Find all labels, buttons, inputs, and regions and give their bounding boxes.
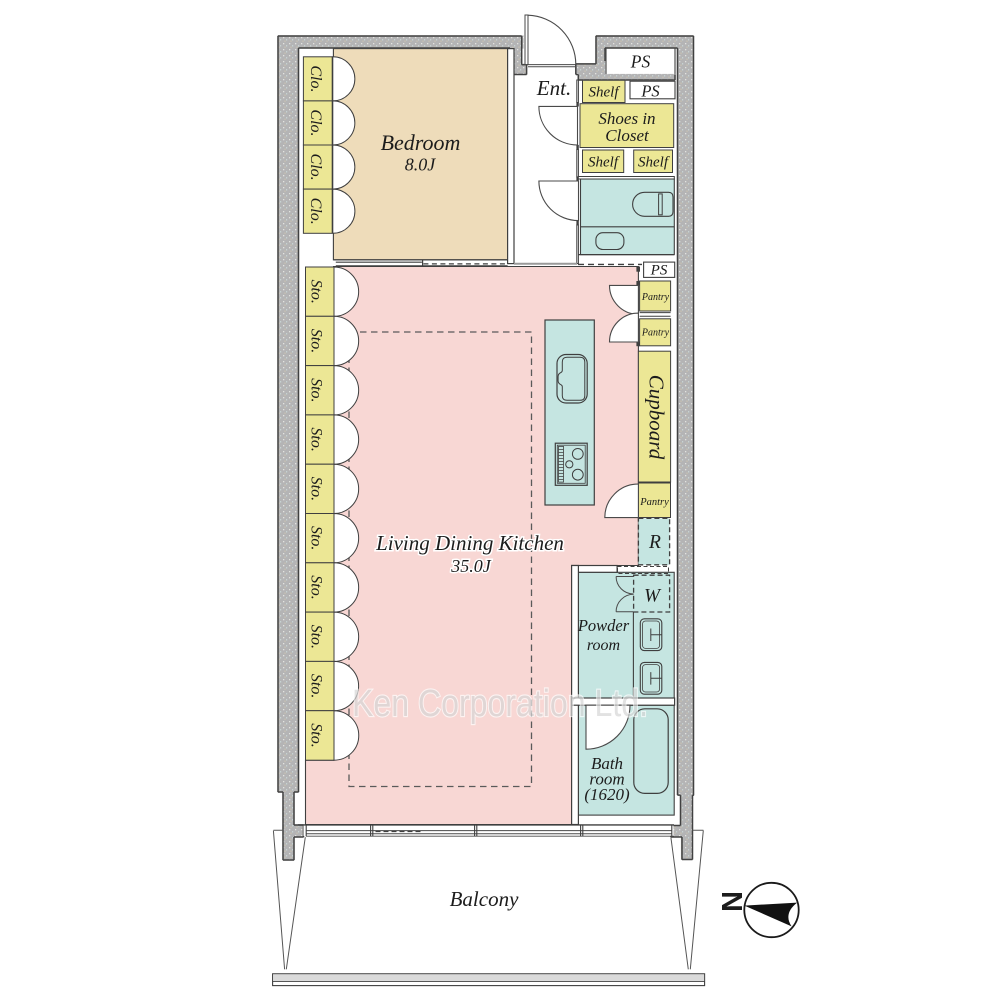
- svg-text:Sto.: Sto.: [308, 674, 325, 698]
- svg-text:Powder: Powder: [577, 616, 630, 635]
- svg-text:(1620): (1620): [584, 785, 630, 804]
- svg-text:R: R: [648, 532, 661, 553]
- svg-text:Shelf: Shelf: [589, 85, 621, 101]
- svg-text:Ent.: Ent.: [536, 76, 571, 100]
- svg-text:PS: PS: [640, 82, 659, 101]
- svg-text:Sto.: Sto.: [308, 526, 325, 550]
- svg-text:PS: PS: [630, 52, 651, 72]
- svg-text:PS: PS: [650, 263, 668, 279]
- svg-text:Ken Corporation Ltd.: Ken Corporation Ltd.: [352, 683, 648, 725]
- svg-text:Pantry: Pantry: [641, 292, 670, 303]
- svg-text:Shelf: Shelf: [588, 155, 620, 171]
- svg-text:Closet: Closet: [605, 126, 650, 145]
- svg-text:Sto.: Sto.: [308, 427, 325, 451]
- svg-text:Sto.: Sto.: [308, 625, 325, 649]
- svg-text:Clo.: Clo.: [307, 198, 324, 225]
- svg-text:Bedroom: Bedroom: [381, 130, 461, 155]
- svg-text:Pantry: Pantry: [639, 497, 669, 508]
- svg-text:N: N: [715, 891, 747, 912]
- svg-text:Sto.: Sto.: [308, 723, 325, 747]
- svg-text:Clo.: Clo.: [307, 154, 324, 181]
- svg-text:Clo.: Clo.: [307, 65, 324, 92]
- svg-text:Sto.: Sto.: [308, 279, 325, 303]
- svg-text:Sto.: Sto.: [308, 575, 325, 599]
- svg-text:35.0J: 35.0J: [450, 556, 492, 576]
- svg-text:Sto.: Sto.: [308, 329, 325, 353]
- svg-text:Living Dining Kitchen: Living Dining Kitchen: [375, 531, 564, 555]
- svg-text:Cupboard: Cupboard: [645, 375, 669, 460]
- svg-text:Sto.: Sto.: [308, 378, 325, 402]
- svg-text:Pantry: Pantry: [641, 328, 670, 339]
- svg-text:8.0J: 8.0J: [405, 155, 437, 175]
- svg-text:W: W: [644, 586, 662, 607]
- svg-text:Sto.: Sto.: [308, 477, 325, 501]
- svg-text:Balcony: Balcony: [450, 887, 519, 911]
- svg-text:Shelf: Shelf: [638, 155, 670, 171]
- svg-text:Clo.: Clo.: [307, 109, 324, 136]
- svg-text:room: room: [587, 637, 620, 654]
